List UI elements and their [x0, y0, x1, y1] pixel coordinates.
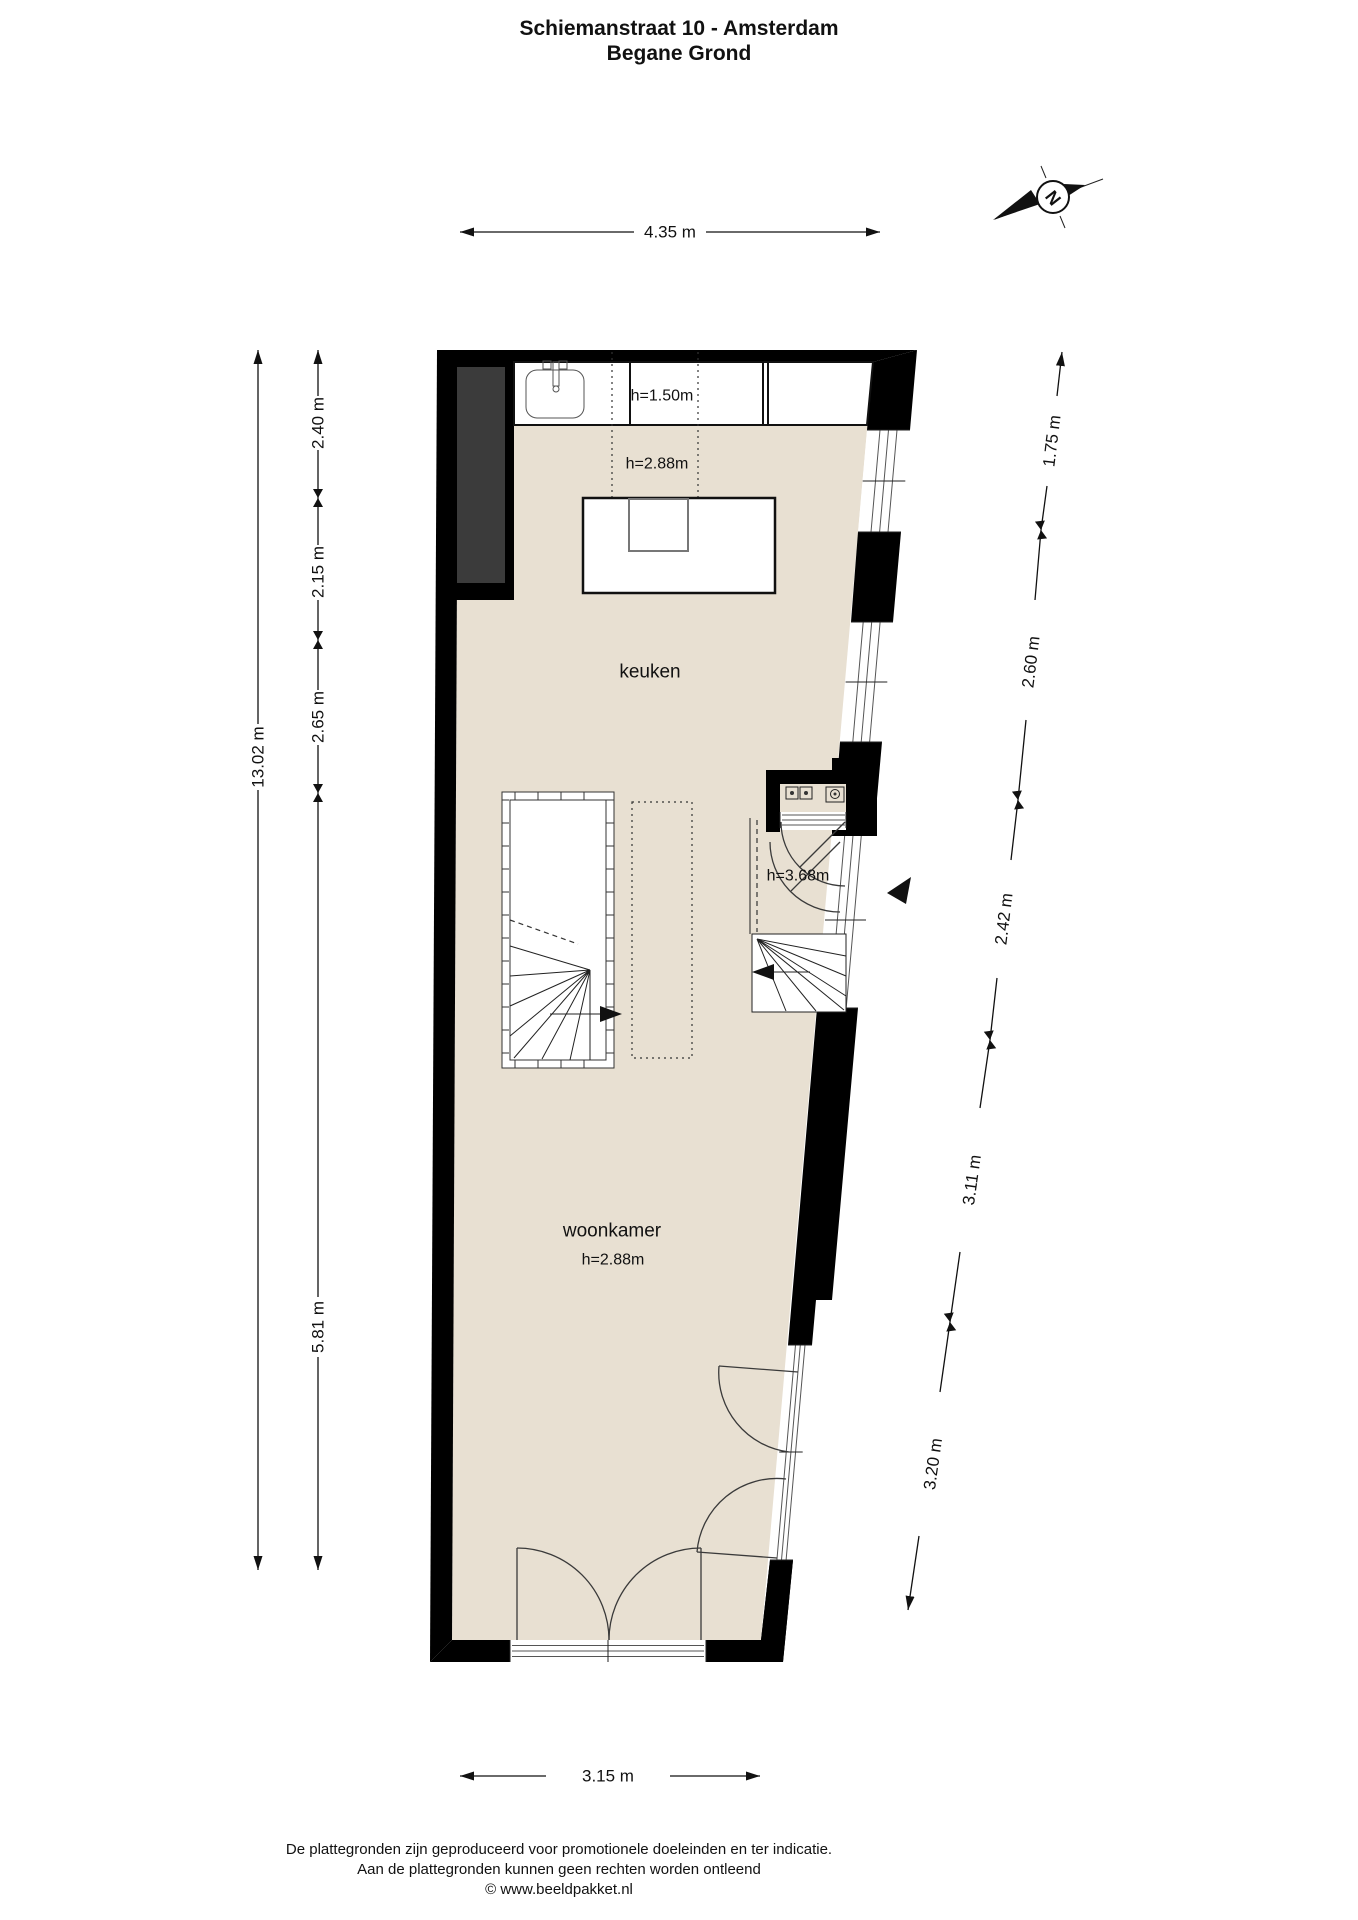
dimension-top: 4.35 m [460, 223, 880, 242]
dim-label-right-4: 3.11 m [959, 1154, 985, 1207]
stairs-entry [752, 934, 846, 1012]
dim-label-right-5: 3.20 m [920, 1437, 946, 1491]
dim-label-right-3: 2.42 m [991, 892, 1016, 946]
footer-line-1: De plattegronden zijn geproduceerd voor … [0, 1840, 1118, 1860]
height-label-kitchen: h=2.88m [626, 456, 689, 473]
room-label-living: woonkamer [562, 1221, 662, 1242]
floor-plan-canvas: h=1.50m h=2.88m keuken [0, 0, 1358, 1920]
dim-label-left-total: 13.02 m [249, 726, 268, 787]
dimension-left-segments: 2.40 m 2.15 m 2.65 m 5.81 m [309, 350, 328, 1570]
dim-label-bottom: 3.15 m [582, 1767, 634, 1786]
height-label-counter: h=1.50m [631, 388, 694, 405]
compass-north-icon: N [993, 166, 1103, 228]
wall-right-s2 [851, 532, 901, 622]
dim-label-left-2: 2.15 m [309, 546, 328, 598]
entrance-arrow [887, 877, 911, 904]
wall-right-s1 [867, 350, 917, 430]
dim-label-left-1: 2.40 m [309, 397, 328, 449]
footer-disclaimer: De plattegronden zijn geproduceerd voor … [0, 1840, 1118, 1900]
dimension-bottom: 3.15 m [460, 1767, 760, 1786]
dim-label-top: 4.35 m [644, 223, 696, 242]
closet [456, 366, 506, 584]
height-label-living: h=2.88m [582, 1252, 645, 1269]
room-label-kitchen: keuken [619, 662, 680, 683]
height-label-hall: h=3.68m [767, 868, 830, 885]
footer-line-2: Aan de plattegronden kunnen geen rechten… [0, 1860, 1118, 1880]
stairs-main [502, 792, 622, 1068]
dimension-left-total: 13.02 m [249, 350, 268, 1570]
hob [629, 499, 688, 551]
dim-label-left-4: 5.81 m [309, 1301, 328, 1353]
dim-label-right-2: 2.60 m [1018, 635, 1043, 689]
kitchen-counter [514, 362, 873, 425]
dimension-right-segments: 1.75 m 2.60 m 2.42 m 3.11 m 3.20 m [908, 352, 1065, 1610]
dim-label-left-3: 2.65 m [309, 691, 328, 743]
footer-line-3: © www.beeldpakket.nl [0, 1880, 1118, 1900]
dim-label-right-1: 1.75 m [1039, 414, 1064, 468]
